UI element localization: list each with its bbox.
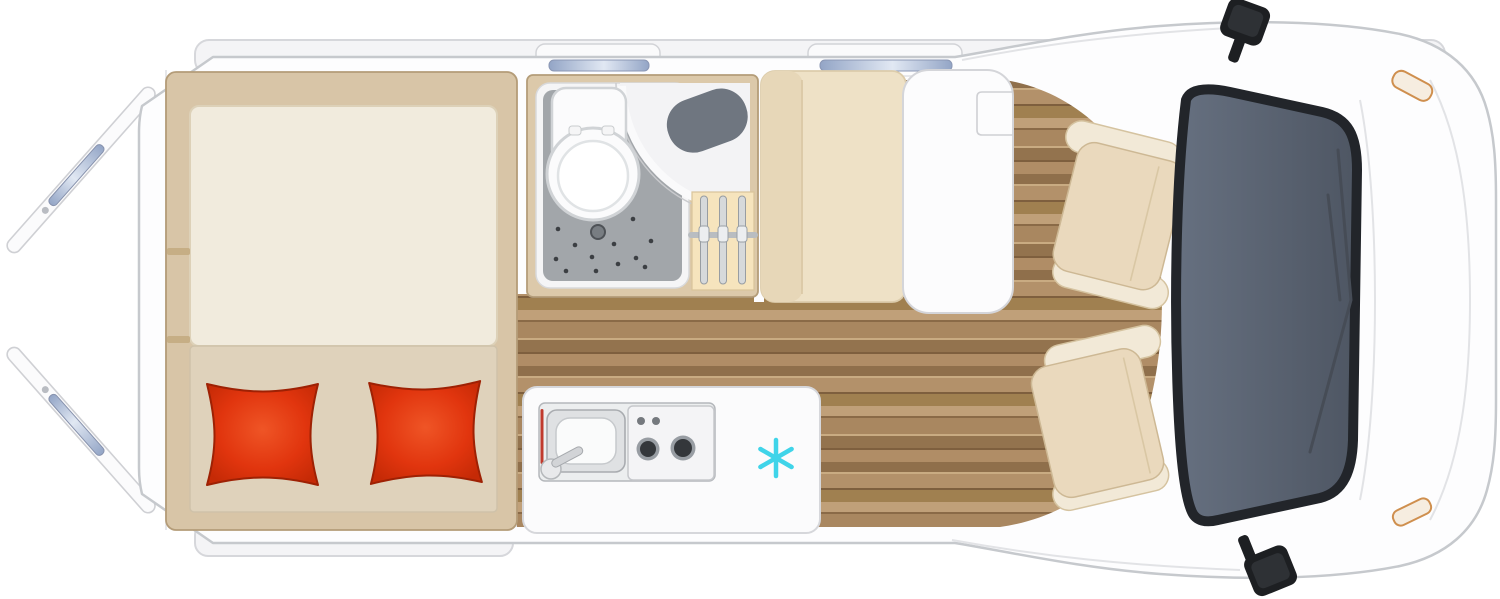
floorplan-canvas: [0, 0, 1500, 599]
pillow-left: [207, 384, 318, 485]
stove-burner-left: [637, 438, 660, 461]
dinette-table: [903, 70, 1013, 313]
bed-frame-notch-1: [167, 248, 190, 255]
toilet-hinge-left: [569, 126, 581, 135]
kitchen: [523, 387, 820, 533]
stove-knob-1: [637, 417, 645, 425]
rear-door-top-open: [4, 84, 158, 255]
campervan-floorplan: [0, 0, 1500, 599]
bed-frame-notch-2: [167, 336, 190, 343]
rear-door-top-window: [47, 143, 105, 207]
rear-door-bottom-open: [4, 345, 158, 516]
rear-door-bottom-window: [47, 393, 105, 457]
stove: [628, 406, 714, 480]
bathroom: [527, 75, 758, 297]
towel-strip: [541, 409, 544, 464]
toilet: [547, 88, 639, 220]
windshield: [1176, 89, 1357, 521]
toilet-bowl: [558, 141, 628, 211]
toilet-hinge-right: [602, 126, 614, 135]
dinette: [761, 70, 1013, 313]
wardrobe-hangers: [688, 192, 758, 290]
pillow-right: [369, 381, 482, 484]
clothes-hangers: [699, 196, 747, 284]
bed-mattress: [190, 106, 497, 346]
window-left: [549, 60, 649, 71]
rear-bed: [166, 72, 517, 530]
stove-burner-right: [671, 436, 696, 461]
shower-drain: [591, 225, 605, 239]
dinette-bench-backrest: [761, 71, 803, 302]
kitchen-sink: [541, 410, 625, 479]
stove-knob-2: [652, 417, 660, 425]
